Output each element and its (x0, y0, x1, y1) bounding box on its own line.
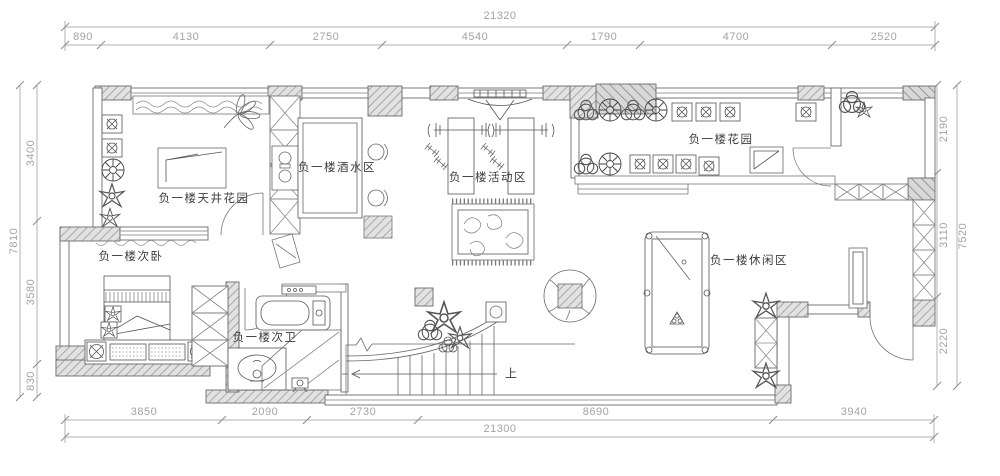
dim-bottom-overall: 21300 (483, 423, 516, 435)
dim-top-seg: 4700 (723, 31, 749, 43)
plant-icon (428, 302, 460, 332)
direction-arrow (342, 370, 497, 378)
plant-icon (599, 153, 621, 175)
round-feature (544, 270, 596, 322)
plant-icon (418, 320, 441, 340)
label-activity-area: 负一楼活动区 (449, 169, 527, 185)
french-door (849, 248, 867, 308)
dim-left-seg: 3580 (25, 279, 37, 305)
plant-icon (653, 155, 673, 173)
newel-post (486, 302, 506, 322)
room-bar (270, 96, 392, 268)
dim-left-overall: 7810 (8, 228, 20, 254)
label-courtyard-garden: 负一楼天井花园 (159, 190, 250, 206)
dim-bottom-seg: 2090 (252, 406, 278, 418)
label-second-bathroom: 负一楼次卫 (233, 329, 298, 345)
dim-top-seg: 2520 (871, 31, 897, 43)
plant-icon (100, 184, 124, 207)
tall-wardrobe (192, 286, 228, 366)
room-leisure (452, 201, 913, 387)
plant-icon (102, 139, 122, 157)
stair-stringer (346, 315, 500, 361)
dim-top-overall: 21320 (483, 10, 516, 22)
right-window (913, 200, 935, 300)
plant-icon (720, 103, 740, 121)
wash-basin (228, 348, 286, 390)
dim-bottom-seg: 8690 (583, 406, 609, 418)
plant-icon (753, 293, 779, 317)
plant-icon (699, 157, 719, 175)
plant-icon (102, 159, 124, 181)
plant-icon (696, 103, 716, 121)
dim-bottom-seg: 3850 (131, 406, 157, 418)
label-leisure-area: 负一楼休闲区 (710, 252, 788, 268)
label-second-bedroom: 负一楼次卧 (99, 248, 164, 264)
plant-icon (102, 115, 122, 133)
floor-plan-canvas: 21320 890 4130 2750 4540 1790 4700 2520 … (0, 0, 1000, 476)
bar-stool (368, 190, 387, 206)
bar-stool (368, 144, 387, 160)
dim-left-seg: 830 (25, 371, 37, 391)
floor-plan-drawing (0, 0, 1000, 476)
dim-right-seg: 2220 (938, 328, 950, 354)
dim-top-seg: 890 (73, 31, 93, 43)
dim-top-seg: 2750 (313, 31, 339, 43)
room-courtyard-garden (96, 94, 269, 246)
dim-top-seg: 4540 (462, 31, 488, 43)
plant-icon (100, 208, 119, 226)
plant-icon (439, 337, 457, 352)
bar-sink (272, 146, 298, 190)
dim-right-seg: 3110 (938, 222, 950, 248)
dim-right-overall: 7520 (957, 223, 969, 249)
topright-window (835, 184, 908, 200)
staircase (342, 302, 575, 395)
plant-icon (676, 155, 696, 173)
garden-steps (578, 184, 688, 194)
dim-top-seg: 1790 (591, 31, 617, 43)
label-stairs-up: 上 (505, 365, 517, 382)
shelf (282, 286, 316, 294)
bathtub (256, 296, 330, 330)
dim-bottom-seg: 3940 (841, 406, 867, 418)
counter-column (364, 216, 392, 238)
stair-risers (398, 326, 494, 395)
plant-icon (630, 155, 650, 173)
courtyard-table (158, 148, 226, 188)
hall-column (415, 288, 433, 306)
dim-bottom-seg: 2730 (350, 406, 376, 418)
garden-planter (750, 147, 783, 173)
plant-icon (796, 103, 816, 121)
terrace-door (870, 317, 913, 360)
room-bedroom (85, 276, 228, 366)
side-cabinet (755, 318, 777, 368)
low-wardrobe (85, 340, 207, 364)
dim-top-seg: 4130 (173, 31, 199, 43)
rug (452, 201, 534, 263)
pool-table (644, 232, 710, 354)
break-line (346, 338, 575, 351)
dim-left-seg: 3400 (25, 140, 37, 166)
dim-right-seg: 2190 (938, 116, 950, 142)
label-bar-area: 负一楼酒水区 (298, 159, 376, 175)
plant-icon (672, 103, 692, 121)
label-garden: 负一楼花园 (689, 131, 754, 147)
